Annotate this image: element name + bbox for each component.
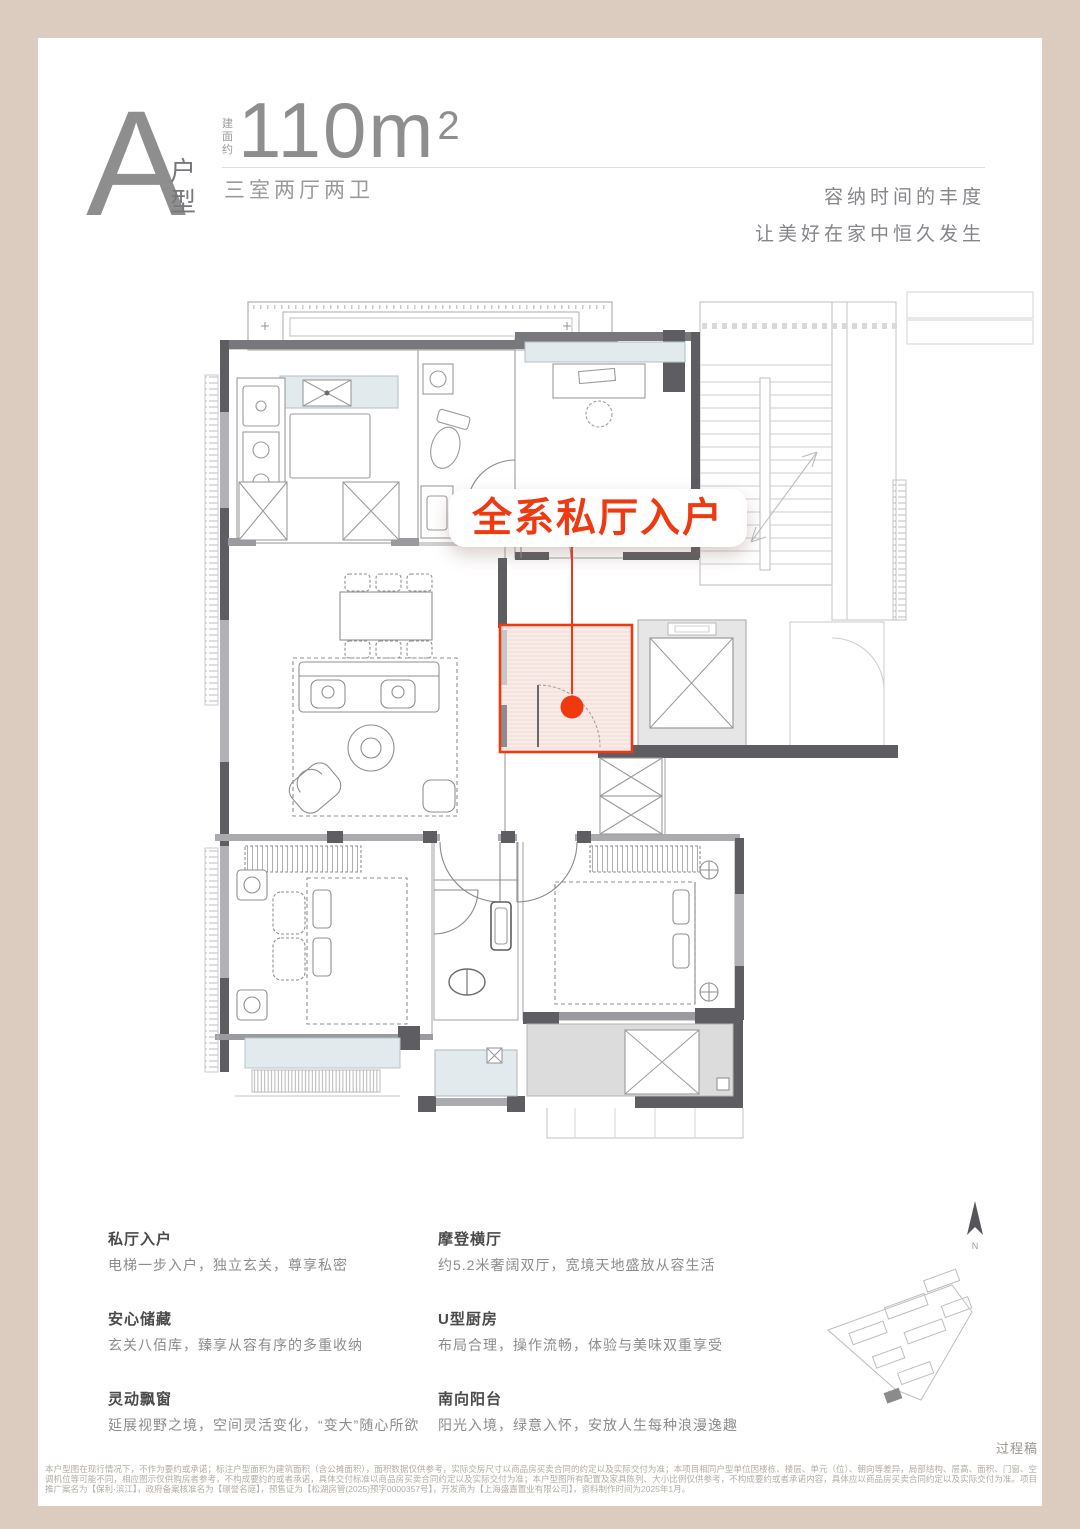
feature-desc: 阳光入境，绿意入怀，安放人生每种浪漫逸趣	[438, 1415, 738, 1435]
disclaimer-text: 本户型图在现行情况下，不作为要约或承诺；标注户型面积为建筑面积（含公摊面积），面…	[45, 1464, 1037, 1494]
entry-dot	[561, 696, 584, 719]
feature-desc: 电梯一步入户，独立玄关，尊享私密	[108, 1255, 348, 1275]
area-exponent: 2	[437, 104, 461, 148]
compass-icon: N	[967, 1201, 983, 1251]
kitchen	[237, 376, 399, 540]
svg-text:N: N	[972, 1241, 979, 1251]
site-plan-svg: N	[815, 1195, 1040, 1425]
area-prefix: 建面约	[222, 118, 234, 157]
floor-plan-svg	[195, 290, 1040, 1170]
poster-root: { "header": { "unit_letter": "A", "unit_…	[0, 0, 1080, 1529]
site-plan	[828, 1268, 993, 1407]
feature-title: 安心储藏	[108, 1308, 172, 1329]
bedroom-2	[237, 842, 500, 1024]
callout-label: 全系私厅入户	[449, 489, 747, 547]
dining-set	[340, 574, 432, 658]
feature-desc: 约5.2米奢阔双厅，宽境天地盛放从容生活	[438, 1255, 715, 1275]
area-value: 110m2	[238, 86, 462, 170]
area-number: 110m	[238, 86, 435, 174]
draft-note: 过程稿	[960, 1438, 1038, 1457]
slogan-line-1: 容纳时间的丰度	[824, 182, 985, 209]
bathroom-2	[434, 890, 511, 1063]
living-area	[284, 658, 457, 818]
slogan-line-2: 让美好在家中恒久发生	[755, 219, 985, 246]
public-corridor	[702, 292, 1033, 620]
layout-description: 三室两厅两卫	[224, 174, 374, 204]
header-divider	[222, 167, 985, 168]
feature-title: 私厅入户	[108, 1228, 172, 1249]
private-hall-highlight	[500, 547, 632, 752]
feature-title: 灵动飘窗	[108, 1388, 172, 1409]
elevator-shaft	[638, 620, 746, 752]
feature-desc: 布局合理，操作流畅，体验与美味双重享受	[438, 1335, 723, 1355]
feature-desc: 玄关八佰库，臻享从容有序的多重收纳	[108, 1335, 363, 1355]
master-bedroom	[517, 842, 718, 1004]
feature-title: U型厨房	[438, 1308, 498, 1329]
entry-closets	[600, 758, 662, 834]
unit-type-label: 户型	[170, 156, 198, 218]
feature-title: 南向阳台	[438, 1388, 502, 1409]
feature-desc: 延展视野之境，空间灵活变化，“变大”随心所欲	[108, 1415, 419, 1435]
elevator-lobby	[790, 622, 884, 746]
feature-title: 摩登横厅	[438, 1228, 502, 1249]
